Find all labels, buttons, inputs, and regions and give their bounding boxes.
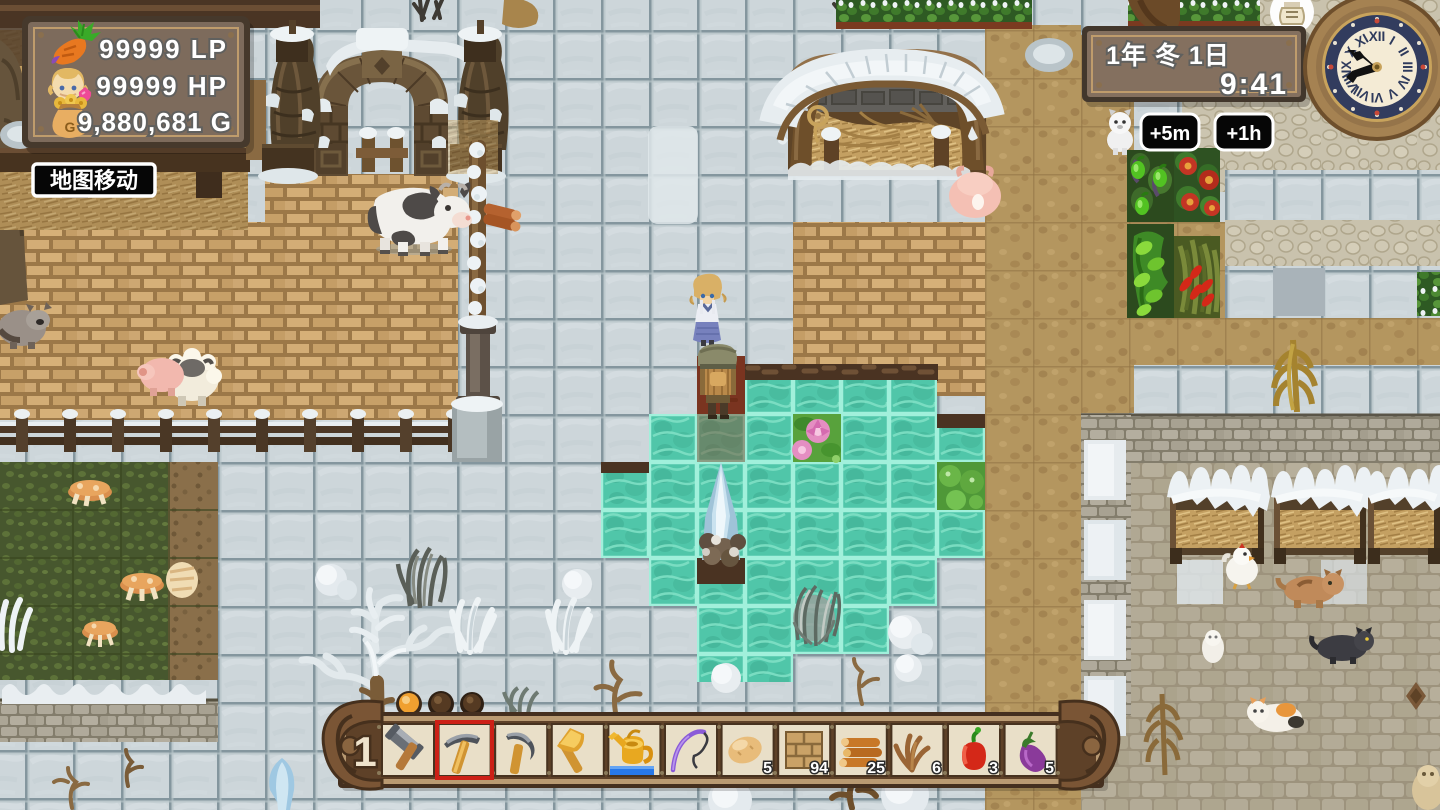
svg-text:25: 25 [867, 760, 885, 777]
svg-text:6: 6 [932, 760, 941, 777]
svg-text:99999 LP: 99999 LP [99, 34, 228, 64]
svg-text:+5m: +5m [1150, 123, 1191, 145]
svg-text:5: 5 [1045, 760, 1054, 777]
svg-text:99999 HP: 99999 HP [96, 71, 228, 101]
svg-text:XII: XII [1369, 29, 1386, 44]
svg-text:地图移动: 地图移动 [50, 168, 138, 193]
svg-text:1: 1 [353, 728, 376, 775]
svg-text:9:41: 9:41 [1220, 68, 1288, 101]
svg-text:3: 3 [989, 760, 998, 777]
svg-text:1年 冬 1日: 1年 冬 1日 [1106, 41, 1230, 70]
svg-text:+1h: +1h [1226, 123, 1261, 145]
svg-text:G: G [65, 119, 76, 135]
svg-text:5: 5 [763, 760, 772, 777]
svg-text:94: 94 [810, 760, 828, 777]
svg-text:III: III [1400, 61, 1415, 72]
svg-text:9,880,681 G: 9,880,681 G [78, 107, 232, 137]
